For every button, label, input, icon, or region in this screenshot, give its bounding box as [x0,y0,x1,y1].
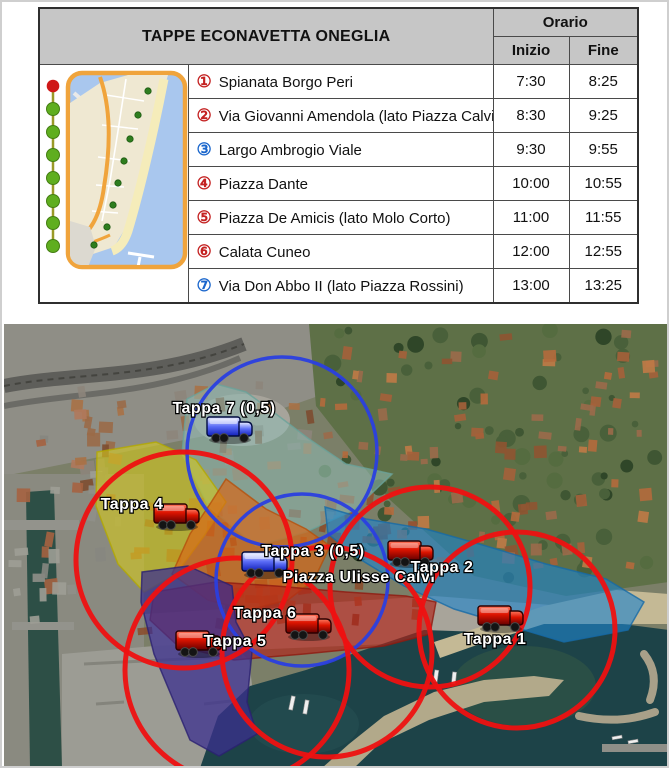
map-canvas: Tappa 7 (0,5)Tappa 4Tappa 3 (0,5)Piazza … [4,324,669,768]
stop-name-cell: ④Piazza Dante [188,167,493,201]
stop-name: Spianata Borgo Peri [219,74,353,91]
inizio-header: Inizio [493,37,569,65]
stop-number-badge: ② [197,106,212,125]
stop-number-badge: ③ [197,140,212,159]
tappa-7-label: Tappa 7 (0,5) [172,400,275,417]
timetable-title: TAPPE ECONAVETTA ONEGLIA [39,8,493,65]
end-time-cell: 9:25 [569,99,638,133]
start-time-cell: 9:30 [493,133,569,167]
stop-name-cell: ⑦Via Don Abbo II (lato Piazza Rossini) [188,269,493,304]
stop-name-cell: ③Largo Ambrogio Viale [188,133,493,167]
start-time-cell: 7:30 [493,65,569,99]
stop-timeline [47,80,60,253]
tappa-4-label: Tappa 4 [101,496,164,513]
stop-name: Via Giovanni Amendola (lato Piazza Calvi… [219,108,493,125]
route-minimap-cell [39,65,188,304]
route-minimap [40,65,189,287]
stop-name: Largo Ambrogio Viale [219,142,362,159]
stop-name-cell: ⑥Calata Cuneo [188,235,493,269]
stop-number-badge: ⑥ [197,242,212,261]
stops-table-body: ①Spianata Borgo Peri7:308:25②Via Giovann… [39,65,638,304]
start-time-cell: 11:00 [493,201,569,235]
stop-name: Via Don Abbo II (lato Piazza Rossini) [219,278,464,295]
flyer-page: TAPPE ECONAVETTA ONEGLIA Orario Inizio F… [0,0,669,768]
stop-name: Piazza Dante [219,176,308,193]
end-time-cell: 12:55 [569,235,638,269]
tappa-1-label: Tappa 1 [464,631,527,648]
orario-header: Orario [493,8,638,37]
stop-number-badge: ⑦ [197,276,212,295]
stop-name-cell: ②Via Giovanni Amendola (lato Piazza Calv… [188,99,493,133]
start-time-cell: 13:00 [493,269,569,304]
start-time-cell: 12:00 [493,235,569,269]
table-row: ①Spianata Borgo Peri7:308:25 [39,65,638,99]
stop-number-badge: ① [197,72,212,91]
start-time-cell: 10:00 [493,167,569,201]
fine-header: Fine [569,37,638,65]
tappa-2-label: Tappa 2 [411,559,474,576]
stop-name-cell: ①Spianata Borgo Peri [188,65,493,99]
end-time-cell: 13:25 [569,269,638,304]
end-time-cell: 9:55 [569,133,638,167]
start-time-cell: 8:30 [493,99,569,133]
stop-name: Calata Cuneo [219,244,311,261]
satellite-route-map: Tappa 7 (0,5)Tappa 4Tappa 3 (0,5)Piazza … [4,324,669,768]
timetable-header: TAPPE ECONAVETTA ONEGLIA Orario Inizio F… [39,8,638,65]
stop-name-cell: ⑤Piazza De Amicis (lato Molo Corto) [188,201,493,235]
minimap-graphic [68,73,185,267]
tappa-3-label: Tappa 3 (0,5) [261,543,364,560]
shuttle-timetable: TAPPE ECONAVETTA ONEGLIA Orario Inizio F… [38,7,639,304]
end-time-cell: 10:55 [569,167,638,201]
stop-number-badge: ④ [197,174,212,193]
tappa-5-label: Tappa 5 [204,633,267,650]
stop-number-badge: ⑤ [197,208,212,227]
timeline-start-dot [47,80,60,93]
end-time-cell: 8:25 [569,65,638,99]
tappa-6-label: Tappa 6 [234,605,297,622]
end-time-cell: 11:55 [569,201,638,235]
stop-name: Piazza De Amicis (lato Molo Corto) [219,210,451,227]
